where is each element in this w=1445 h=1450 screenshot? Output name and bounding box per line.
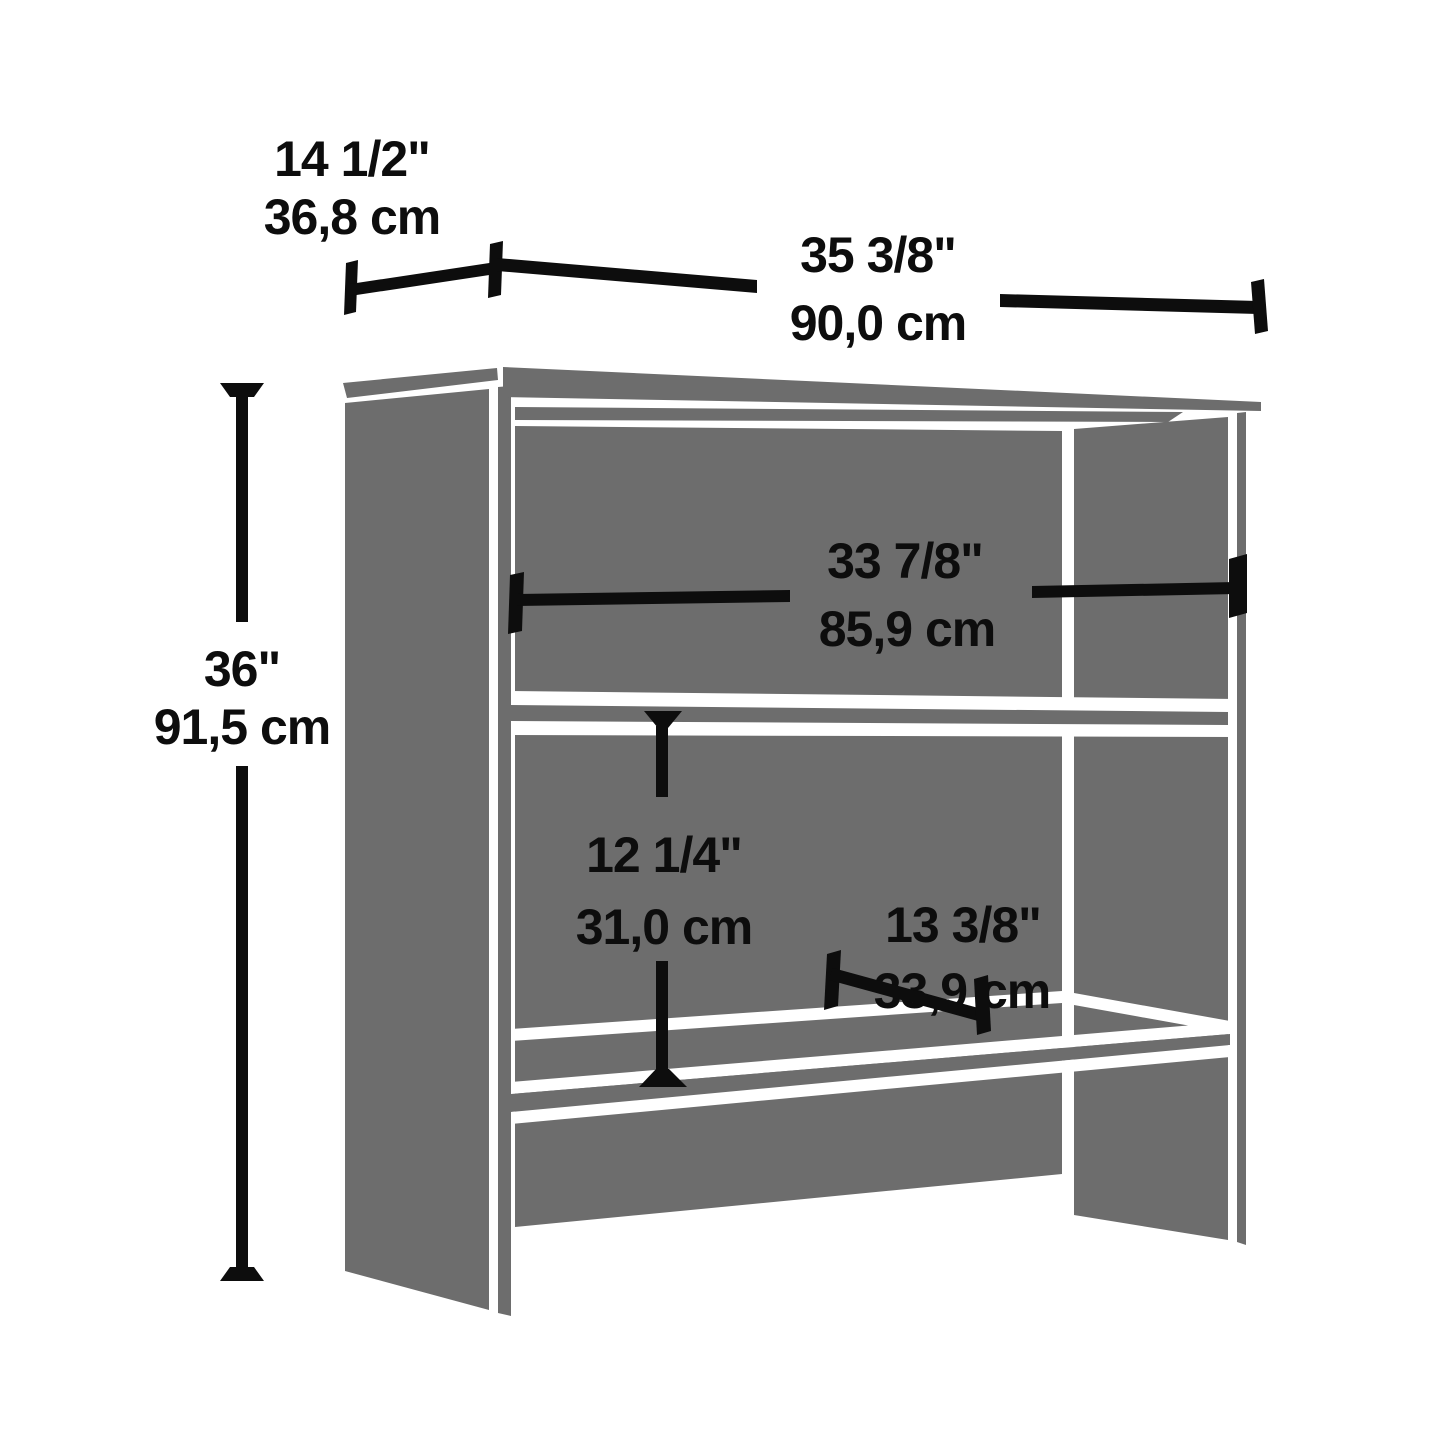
top-board-front-edge	[503, 367, 1261, 411]
overall-height-cm-label: 91,5 cm	[154, 699, 330, 755]
shelf-depth-tick-right	[974, 975, 991, 1035]
overall-height-inches-label: 36"	[204, 641, 280, 697]
overall-height-line-upper	[236, 394, 248, 622]
left-side-panel-outer	[345, 389, 489, 1310]
left-side-panel-front-edge	[498, 386, 511, 1316]
shelf-height-inches-label: 12 1/4"	[586, 827, 742, 883]
dimension-overall-height: 36" 91,5 cm	[154, 383, 330, 1281]
interior-width-tick-right	[1229, 554, 1247, 618]
shelf-height-cm-label: 31,0 cm	[576, 899, 752, 955]
overall-width-tick-right	[1251, 279, 1268, 334]
shelf-height-line-upper	[656, 726, 668, 797]
overall-depth-line	[350, 262, 496, 296]
dimension-overall-width: 35 3/8" 90,0 cm	[488, 227, 1268, 351]
top-board-inner-rail	[515, 407, 1183, 422]
overall-depth-cm-label: 36,8 cm	[264, 189, 440, 245]
overall-height-line-lower	[236, 766, 248, 1268]
right-side-panel-front-edge	[1237, 412, 1246, 1245]
shelf-depth-inches-label: 13 3/8"	[885, 897, 1041, 953]
shelf-height-line-lower	[656, 961, 668, 1070]
interior-width-cm-label: 85,9 cm	[819, 601, 995, 657]
dimension-overall-depth: 14 1/2" 36,8 cm	[264, 131, 496, 315]
right-side-panel-inner-face	[1074, 417, 1228, 1240]
overall-width-inches-label: 35 3/8"	[800, 227, 956, 283]
bookcase-hutch-drawing	[343, 367, 1261, 1316]
overall-width-line-right	[1000, 294, 1258, 314]
overall-depth-inches-label: 14 1/2"	[274, 131, 430, 187]
overall-height-cap-bottom	[220, 1267, 264, 1281]
overall-width-cm-label: 90,0 cm	[790, 295, 966, 351]
interior-width-inches-label: 33 7/8"	[827, 533, 983, 589]
dimension-diagram-canvas: 14 1/2" 36,8 cm 35 3/8" 90,0 cm 36" 91,5…	[0, 0, 1445, 1445]
overall-width-line-left	[497, 258, 757, 293]
